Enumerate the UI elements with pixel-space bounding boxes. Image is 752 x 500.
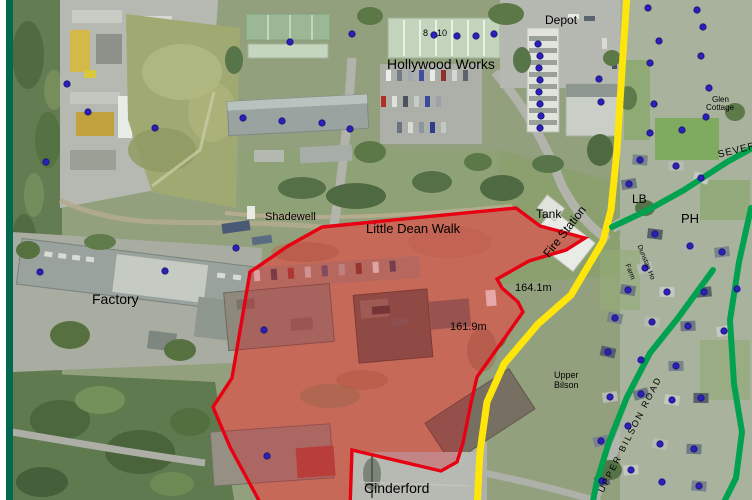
address-point-dot: [691, 446, 697, 452]
address-point-dot: [233, 245, 239, 251]
address-point-dot: [734, 286, 740, 292]
address-point-dot: [43, 159, 49, 165]
address-point-dot: [698, 175, 704, 181]
address-point-dot: [637, 157, 643, 163]
address-point-dot: [319, 120, 325, 126]
address-point-dot: [537, 77, 543, 83]
address-point-dot: [647, 60, 653, 66]
address-point-dot: [645, 5, 651, 11]
address-point-dot: [673, 363, 679, 369]
address-point-dot: [647, 130, 653, 136]
address-point-dot: [240, 115, 246, 121]
address-point-dot: [642, 265, 648, 271]
map-viewport[interactable]: DepotHollywood Works810ShadewellLittle D…: [0, 0, 752, 500]
address-point-dot: [349, 31, 355, 37]
hollywood-works-building: [388, 18, 500, 58]
address-point-dot: [85, 109, 91, 115]
address-point-dot: [625, 287, 631, 293]
address-point-dot: [652, 231, 658, 237]
address-point-dot: [536, 89, 542, 95]
address-point-dot: [719, 249, 725, 255]
address-point-dot: [261, 327, 267, 333]
address-point-dot: [612, 315, 618, 321]
address-point-dot: [598, 99, 604, 105]
address-point-dot: [264, 453, 270, 459]
address-point-dot: [287, 39, 293, 45]
address-point-dot: [685, 323, 691, 329]
address-point-dot: [431, 32, 437, 38]
address-point-dot: [279, 118, 285, 124]
tree-cover-south: [12, 372, 235, 500]
address-point-dot: [687, 243, 693, 249]
address-point-dot: [664, 289, 670, 295]
address-point-dot: [538, 113, 544, 119]
address-point-dot: [537, 101, 543, 107]
address-point-dot: [657, 441, 663, 447]
address-point-dot: [605, 349, 611, 355]
address-point-dot: [628, 467, 634, 473]
address-point-dot: [698, 53, 704, 59]
address-point-dot: [669, 397, 675, 403]
address-point-dot: [638, 357, 644, 363]
aerial-basemap: [0, 0, 752, 500]
address-point-dot: [703, 114, 709, 120]
address-point-dot: [638, 391, 644, 397]
address-point-dot: [152, 125, 158, 131]
address-point-dot: [37, 269, 43, 275]
address-point-dot: [700, 24, 706, 30]
map-frame-border: [0, 0, 13, 500]
address-point-dot: [596, 76, 602, 82]
address-point-dot: [598, 438, 604, 444]
address-point-dot: [64, 81, 70, 87]
address-point-dot: [698, 395, 704, 401]
address-point-dot: [625, 423, 631, 429]
address-point-dot: [694, 7, 700, 13]
address-point-dot: [537, 125, 543, 131]
address-point-dot: [721, 328, 727, 334]
address-point-dot: [537, 53, 543, 59]
address-point-dot: [473, 33, 479, 39]
address-point-dot: [535, 41, 541, 47]
address-point-dot: [679, 127, 685, 133]
address-point-dot: [626, 181, 632, 187]
address-point-dot: [536, 65, 542, 71]
address-point-dot: [701, 289, 707, 295]
address-point-dot: [162, 268, 168, 274]
address-point-dot: [673, 163, 679, 169]
address-point-dot: [454, 33, 460, 39]
address-point-dot: [651, 101, 657, 107]
address-point-dot: [696, 483, 702, 489]
car-park-north: [380, 64, 482, 144]
address-point-dot: [347, 126, 353, 132]
address-point-dot: [607, 394, 613, 400]
address-point-dot: [659, 479, 665, 485]
address-point-dot: [656, 38, 662, 44]
address-point-dot: [649, 319, 655, 325]
address-point-dot: [706, 85, 712, 91]
address-point-dot: [491, 31, 497, 37]
address-point-dot: [599, 478, 605, 484]
